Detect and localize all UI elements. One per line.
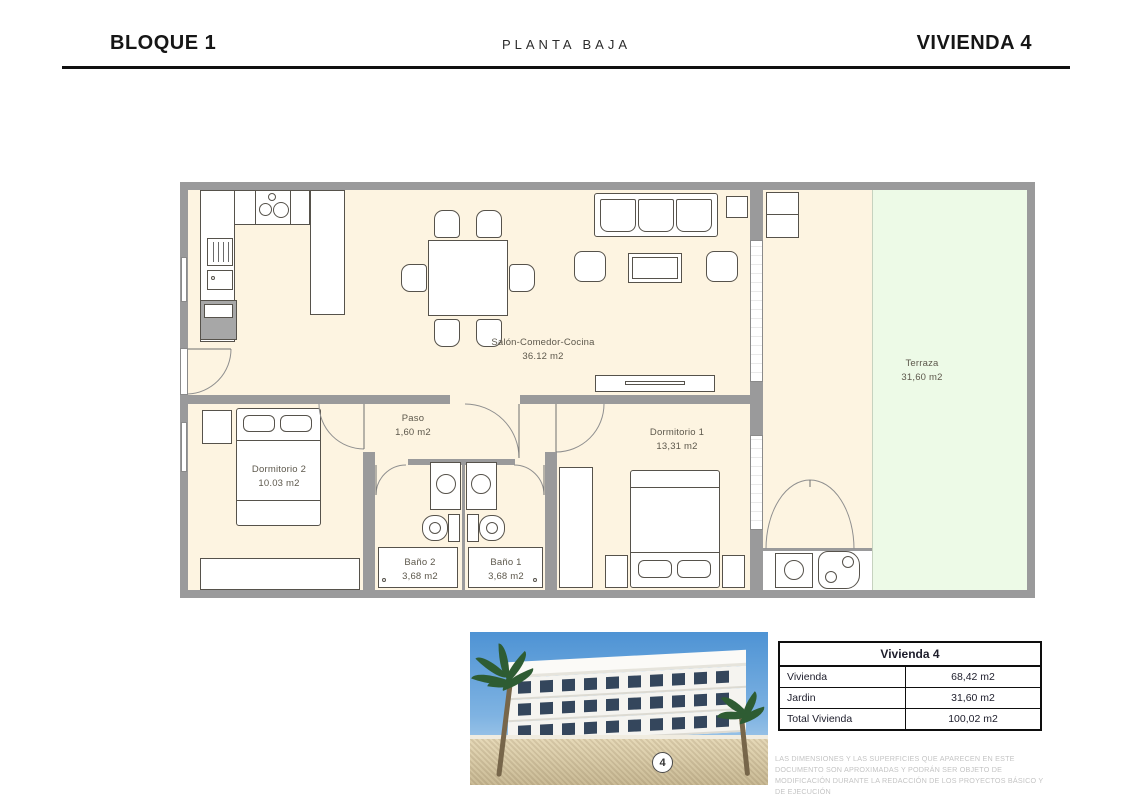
storage-line	[767, 214, 798, 215]
bedroom1-window	[750, 435, 763, 530]
room-name: Dormitorio 2	[232, 463, 326, 477]
header-divider	[62, 66, 1070, 69]
room-label-bano-2: Baño 2 3,68 m2	[383, 556, 457, 584]
garden-area	[872, 190, 1028, 590]
wall	[545, 452, 557, 590]
dish-rack	[207, 238, 233, 266]
room-area: 31,60 m2	[872, 371, 972, 385]
wall	[750, 190, 763, 240]
building-photo: 4	[470, 632, 768, 785]
toilet-cistern	[467, 514, 479, 542]
row-label: Jardin	[780, 688, 906, 708]
heater-valve	[842, 556, 854, 568]
terrace-storage-box	[766, 192, 799, 238]
sofa-cushion	[600, 199, 636, 232]
room-name: Baño 2	[383, 556, 457, 570]
dining-table	[428, 240, 508, 316]
wall	[462, 459, 465, 590]
washbasin	[471, 474, 491, 494]
dining-chair	[434, 319, 460, 347]
room-label-bano-1: Baño 1 3,68 m2	[471, 556, 541, 584]
room-name: Dormitorio 1	[630, 426, 724, 440]
pillow	[280, 415, 312, 432]
bedroom2-window	[181, 422, 187, 472]
side-table	[726, 196, 748, 218]
row-value: 100,02 m2	[906, 709, 1040, 729]
wall	[750, 382, 763, 435]
sofa-cushion	[638, 199, 674, 232]
room-area: 1,60 m2	[378, 426, 448, 440]
sink-drain	[211, 276, 215, 280]
room-label-dormitorio-2: Dormitorio 2 10.03 m2	[232, 463, 326, 491]
tv	[625, 381, 685, 385]
room-area: 13,31 m2	[630, 440, 724, 454]
stove-burner	[273, 202, 289, 218]
room-name: Salón-Comedor-Cocina	[483, 336, 603, 350]
stove-burner	[259, 203, 272, 216]
bed-line	[237, 500, 320, 501]
palm-tree-right	[714, 690, 768, 780]
dining-chair	[401, 264, 427, 292]
room-label-terraza: Terraza 31,60 m2	[872, 357, 972, 385]
row-value: 31,60 m2	[906, 688, 1040, 708]
fridge-door	[204, 304, 233, 318]
washbasin	[436, 474, 456, 494]
armchair	[706, 251, 738, 282]
bed-line	[631, 487, 719, 488]
wardrobe-dormitorio-1	[559, 467, 593, 588]
row-label: Vivienda	[780, 667, 906, 687]
bed-line	[237, 440, 320, 441]
table-row: Total Vivienda 100,02 m2	[780, 709, 1040, 729]
room-label-salon: Salón-Comedor-Cocina 36.12 m2	[483, 336, 603, 364]
row-label: Total Vivienda	[780, 709, 906, 729]
room-area: 3,68 m2	[383, 570, 457, 584]
wall	[188, 395, 450, 404]
toilet-cistern	[448, 514, 460, 542]
table-title: Vivienda 4	[780, 643, 1040, 667]
unit-title: VIVIENDA 4	[917, 32, 1032, 55]
dining-chair	[509, 264, 535, 292]
floor-plan: Salón-Comedor-Cocina 36.12 m2 Paso 1,60 …	[180, 182, 1035, 598]
wall	[1027, 182, 1035, 598]
washer-drum	[784, 560, 804, 580]
toilet-bowl-inner	[486, 522, 498, 534]
kitchen-island	[310, 190, 345, 315]
nightstand	[722, 555, 745, 588]
coffee-table-top	[632, 257, 678, 279]
kitchen-sink	[207, 270, 233, 290]
room-label-paso: Paso 1,60 m2	[378, 412, 448, 440]
room-name: Terraza	[872, 357, 972, 371]
sofa-cushion	[676, 199, 712, 232]
pillow	[638, 560, 672, 578]
wall	[750, 530, 763, 590]
water-heater	[818, 551, 860, 589]
toilet-bowl-inner	[429, 522, 441, 534]
row-value: 68,42 m2	[906, 667, 1040, 687]
bed-line	[631, 552, 719, 553]
room-label-dormitorio-1: Dormitorio 1 13,31 m2	[630, 426, 724, 454]
table-row: Vivienda 68,42 m2	[780, 667, 1040, 688]
wall	[520, 395, 750, 404]
pillow	[243, 415, 275, 432]
pillow	[677, 560, 711, 578]
palm-tree-left	[472, 644, 552, 774]
wall	[180, 590, 1035, 598]
room-name: Paso	[378, 412, 448, 426]
dining-chair	[434, 210, 460, 238]
wardrobe-dormitorio-2	[200, 558, 360, 590]
heater-valve	[825, 571, 837, 583]
room-area: 10.03 m2	[232, 477, 326, 491]
table-row: Jardin 31,60 m2	[780, 688, 1040, 709]
stove-burner	[268, 193, 276, 201]
closet-box	[202, 410, 232, 444]
legal-disclaimer: LAS DIMENSIONES Y LAS SUPERFICIES QUE AP…	[775, 753, 1047, 798]
salon-sliding-door	[750, 240, 763, 382]
armchair	[574, 251, 606, 282]
room-area: 3,68 m2	[471, 570, 541, 584]
kitchen-window	[181, 257, 187, 302]
entry-door-opening	[180, 348, 188, 395]
wall	[180, 182, 1035, 190]
surface-summary-table: Vivienda 4 Vivienda 68,42 m2 Jardin 31,6…	[778, 641, 1042, 731]
plan-sheet: BLOQUE 1 PLANTA BAJA VIVIENDA 4	[0, 0, 1133, 800]
nightstand	[605, 555, 628, 588]
dining-chair	[476, 210, 502, 238]
room-name: Baño 1	[471, 556, 541, 570]
wall	[363, 452, 375, 590]
block-number-badge: 4	[652, 752, 673, 773]
room-area: 36.12 m2	[483, 350, 603, 364]
